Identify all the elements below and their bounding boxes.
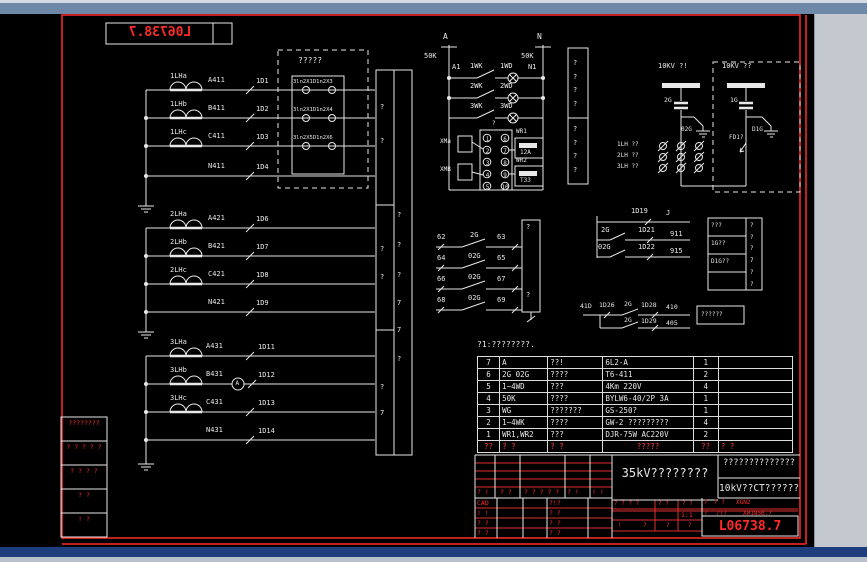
terminal-label: 1D4 xyxy=(256,164,269,171)
fuse-label: 50K xyxy=(424,53,437,60)
phase-label: A411 xyxy=(208,77,225,84)
terminal-label: 1D21 xyxy=(638,227,655,234)
scale-cell: ! xyxy=(618,523,622,529)
project-code: X01850.7 xyxy=(743,511,772,517)
mini-cell: ? xyxy=(704,511,708,517)
signal-box-marks: ? ? ? 7 ? ? xyxy=(750,220,754,290)
terminal-label: 1D19 xyxy=(631,208,648,215)
terminal-label: 1D13 xyxy=(258,400,275,407)
terminal-label: 1D12 xyxy=(258,372,275,379)
phase-label: N411 xyxy=(208,163,225,170)
signature-cell: ?!? xyxy=(549,500,561,507)
switch-label: 2WK xyxy=(470,83,483,90)
table-row: 62G 02G????T6-4112 xyxy=(478,369,793,381)
contact-switch: 2G xyxy=(470,232,478,239)
block-terminals-left: 1 2 3 4 5 xyxy=(484,134,491,194)
contact-number: 64 xyxy=(437,255,445,262)
node-label: A1 xyxy=(452,64,460,71)
revision-row: ???????? xyxy=(62,420,106,427)
qbox-marks: ? ? ? ? xyxy=(573,123,577,177)
qbox-marks: ? ? ? ? xyxy=(573,57,577,111)
terminal-label: 1D29 xyxy=(641,318,657,325)
contact-box-mark: ? xyxy=(526,224,530,231)
scale-cell: ? ? xyxy=(682,501,693,507)
terminal-label: 1D26 xyxy=(599,302,615,309)
signal-box-row: D1G?? xyxy=(711,259,729,265)
drawing-title-1: ?????????????? xyxy=(719,459,799,468)
fuse-label: 50K xyxy=(521,53,534,60)
terminal-label: 1D7 xyxy=(256,244,269,251)
cad-label: CAD xyxy=(477,500,489,507)
signature-cell: ? ? xyxy=(549,510,561,517)
revision-row: ? ? xyxy=(62,492,106,499)
wire-tag: J xyxy=(666,210,670,217)
strip-mark: 7 xyxy=(380,410,384,417)
lamp-label: 1WD xyxy=(500,63,513,70)
table-row: 7A??!6L2-A1 xyxy=(478,357,793,369)
scale-cell: ? ? xyxy=(658,501,669,507)
switch-label: 3WK xyxy=(470,103,483,110)
signature-cell: ? ? xyxy=(549,520,561,527)
switch-label: 1WK xyxy=(470,63,483,70)
junction-row-label: 3ln2X1D1n2X3 xyxy=(293,80,333,86)
ct-label: 1LHa xyxy=(170,73,187,80)
signature-cell: ? ? xyxy=(549,530,561,537)
bus-a-label: A xyxy=(443,33,448,41)
scale-cell: ? xyxy=(643,523,647,529)
signature-cell: ? ? xyxy=(477,530,489,537)
wire-tag: 405 xyxy=(666,320,678,327)
strip-mark: ? xyxy=(397,212,401,219)
mini-cell: ? xyxy=(704,500,708,506)
contact-switch: 2G xyxy=(624,317,632,324)
strip-mark: ? xyxy=(380,138,384,145)
project-code: XGN2 xyxy=(736,500,750,506)
mini-cell: ?!? xyxy=(716,511,727,517)
table-header-row: ??? ?? ????????? ? xyxy=(478,441,793,453)
hv-bus-label: 10KV ?! xyxy=(658,63,688,70)
contact-switch: 02G xyxy=(598,244,611,251)
socket-label: XMa xyxy=(440,139,451,145)
junction-row-label: 3ln2X1D1n2X4 xyxy=(293,108,333,114)
revision-row: ! ? xyxy=(62,516,106,523)
contact-switch: 02G xyxy=(468,274,481,281)
contact-switch: 2G xyxy=(601,227,609,234)
hv-ct-label: 2LH ?? xyxy=(617,153,639,159)
terminal-label: 1D6 xyxy=(256,216,269,223)
scale-cell: ? ? ? ? xyxy=(614,501,639,507)
scale-cell: ? xyxy=(688,523,692,529)
drawing-number: L06738.7 xyxy=(702,520,798,533)
ct-label: 2LHa xyxy=(170,211,187,218)
feeder-label: FD1? xyxy=(729,135,743,141)
terminal-label: 1D14 xyxy=(258,428,275,435)
mini-cell: ? ? xyxy=(714,500,725,506)
product-name: 35kV???????? xyxy=(613,467,717,479)
wire-tag: 915 xyxy=(670,248,683,255)
junction-row-label: 3ln2X5D1n2X6 xyxy=(293,136,333,142)
table-row: 1WR1,WR2???DJR-75W AC220V2 xyxy=(478,429,793,441)
contact-number: 69 xyxy=(497,297,505,304)
ct-label: 1LHb xyxy=(170,101,187,108)
heater-label: WR2 xyxy=(516,158,527,164)
bom-note: ?1:????????. xyxy=(477,341,535,349)
wire-tag: 41D xyxy=(580,303,592,310)
drawing-title-2: 10kV??CT?????? xyxy=(719,484,799,494)
phase-label: A431 xyxy=(206,343,223,350)
strip-mark: ? xyxy=(397,272,401,279)
trip-box-label: ?????? xyxy=(701,312,723,318)
strip-mark: 7 xyxy=(397,300,401,307)
phase-label: C421 xyxy=(208,271,225,278)
contact-switch: 02G xyxy=(468,253,481,260)
terminal-label: 1D2 xyxy=(256,106,269,113)
contact-number: 62 xyxy=(437,234,445,241)
contact-switch: 02G xyxy=(468,295,481,302)
contact-number: 66 xyxy=(437,276,445,283)
terminal-label: 1D3 xyxy=(256,134,269,141)
strip-mark: ? xyxy=(380,384,384,391)
phase-label: B411 xyxy=(208,105,225,112)
phase-label: A421 xyxy=(208,215,225,222)
heater-label: WR1 xyxy=(516,129,527,135)
contact-number: 65 xyxy=(497,255,505,262)
node-label: N1 xyxy=(528,64,536,71)
lamp-label: 3WD xyxy=(500,103,513,110)
contact-number: 67 xyxy=(497,276,505,283)
earth-switch-label: D1G xyxy=(752,127,763,133)
socket-label: XMB xyxy=(440,167,451,173)
strip-mark: 7 xyxy=(397,327,401,334)
contact-number: 68 xyxy=(437,297,445,304)
phase-label: C411 xyxy=(208,133,225,140)
contact-switch: 2G xyxy=(624,301,632,308)
block-tag: ? xyxy=(492,121,496,127)
bom-table: 7A??!6L2-A1 62G 02G????T6-4112 51~4WD???… xyxy=(477,356,793,453)
terminal-label: 1D22 xyxy=(638,244,655,251)
lamp-label: 2WD xyxy=(500,83,513,90)
terminal-label: 1D1 xyxy=(256,78,269,85)
heater-value: 12A xyxy=(520,150,531,156)
wire-tag: 410 xyxy=(666,304,678,311)
ct-label: 2LHb xyxy=(170,239,187,246)
ct-label: 2LHc xyxy=(170,267,187,274)
ct-label: 3LHb xyxy=(170,367,187,374)
signature-cell: ? ! xyxy=(567,489,579,496)
junction-box-title: ????? xyxy=(298,57,322,65)
scale-cell: ? xyxy=(666,523,670,529)
signature-cell: ? ? xyxy=(500,489,512,496)
revision-row: ? ? ? ? xyxy=(62,468,106,475)
phase-label: B431 xyxy=(206,371,223,378)
terminal-label: 1D28 xyxy=(641,302,657,309)
strip-mark: ? xyxy=(380,104,384,111)
bus-n-label: N xyxy=(537,33,542,41)
signature-cell: ? ! xyxy=(477,489,489,496)
wire-tag: 911 xyxy=(670,231,683,238)
strip-mark: ? xyxy=(397,356,401,363)
signature-cell: ! ! xyxy=(477,510,489,517)
strip-mark: ? xyxy=(380,274,384,281)
signal-box-row: 1G?? xyxy=(711,241,725,247)
signal-box-row: ??? xyxy=(711,223,722,229)
phase-label: C431 xyxy=(206,399,223,406)
ct-label: 1LHc xyxy=(170,129,187,136)
earth-switch-label: 02G xyxy=(681,127,692,133)
strip-mark: ? xyxy=(397,242,401,249)
terminal-label: 1D9 xyxy=(256,300,269,307)
isolator-label: 1G xyxy=(730,97,738,104)
signature-cell: ! ! xyxy=(592,489,604,496)
phase-label: N421 xyxy=(208,299,225,306)
phase-label: N431 xyxy=(206,427,223,434)
hv-ct-label: 1LH ?? xyxy=(617,142,639,148)
schematic-lines[interactable] xyxy=(0,0,867,562)
scale-value: 1:1 xyxy=(681,512,693,519)
table-row: 450K????BYLW6-40/2P 3A1 xyxy=(478,393,793,405)
strip-mark: ? xyxy=(380,246,384,253)
signature-cell: ? ? ? ? ? xyxy=(524,489,559,496)
hv-bus-label: 10KV ?? xyxy=(722,63,752,70)
terminal-label: 1D11 xyxy=(258,344,275,351)
table-row: 21~4WK????GW-2 ?????????4 xyxy=(478,417,793,429)
contact-box-mark: ? xyxy=(526,292,530,299)
ct-label: 3LHa xyxy=(170,339,187,346)
table-row: 3WG???????GS-250?1 xyxy=(478,405,793,417)
heater-value: T33 xyxy=(520,178,531,184)
contact-number: 63 xyxy=(497,234,505,241)
phase-label: B421 xyxy=(208,243,225,250)
block-terminals-right: 6 7 8 9 10 xyxy=(499,134,511,194)
signature-cell: ? ? xyxy=(477,520,489,527)
drawing-number-top: L06738.7 xyxy=(110,26,210,39)
isolator-label: 2G xyxy=(664,97,672,104)
terminal-label: 1D8 xyxy=(256,272,269,279)
ct-label: 3LHc xyxy=(170,395,187,402)
revision-row: ? ? ? ? ? xyxy=(62,444,106,451)
table-row: 51~4WD???4Km 220V4 xyxy=(478,381,793,393)
cad-viewer-window: L06738.7 1LHa 1LHb 1LHc A411 B411 C411 N… xyxy=(0,0,867,562)
hv-ct-label: 3LH ?? xyxy=(617,164,639,170)
ammeter-icon: A xyxy=(236,381,240,387)
